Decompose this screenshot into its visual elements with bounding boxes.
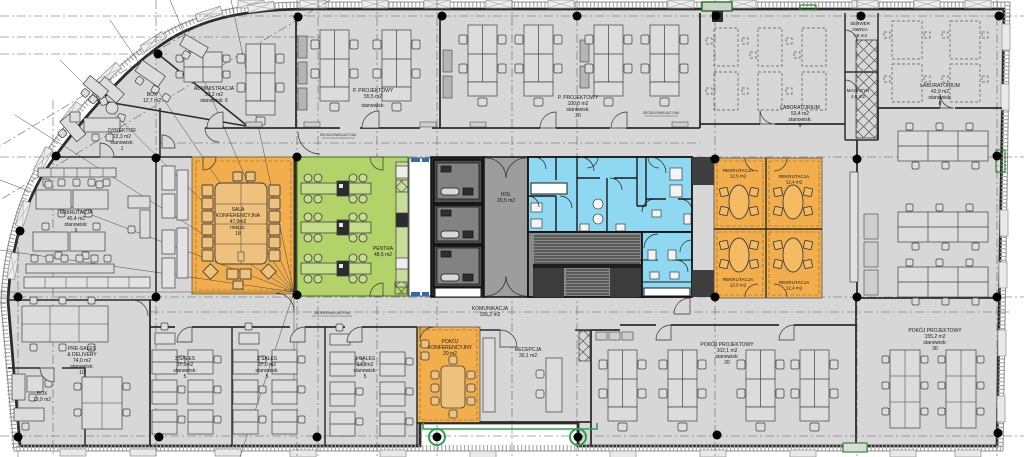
svg-text:OWNIA: OWNIA: [852, 27, 869, 32]
svg-text:MAGAZYN: MAGAZYN: [847, 88, 870, 93]
svg-text:4,8 m2: 4,8 m2: [851, 94, 865, 99]
svg-text:DROGA EWAKUACYJNA: DROGA EWAKUACYJNA: [314, 311, 351, 315]
svg-text:7,8 m2: 7,8 m2: [853, 33, 867, 38]
svg-text:DROGA EWAKUACYJNA: DROGA EWAKUACYJNA: [320, 133, 357, 137]
svg-text:SERWER: SERWER: [850, 21, 871, 26]
svg-text:PENTRA48,5 m2: PENTRA48,5 m2: [373, 246, 394, 258]
svg-text:DROGA EWAKUACYJNA: DROGA EWAKUACYJNA: [643, 111, 680, 115]
